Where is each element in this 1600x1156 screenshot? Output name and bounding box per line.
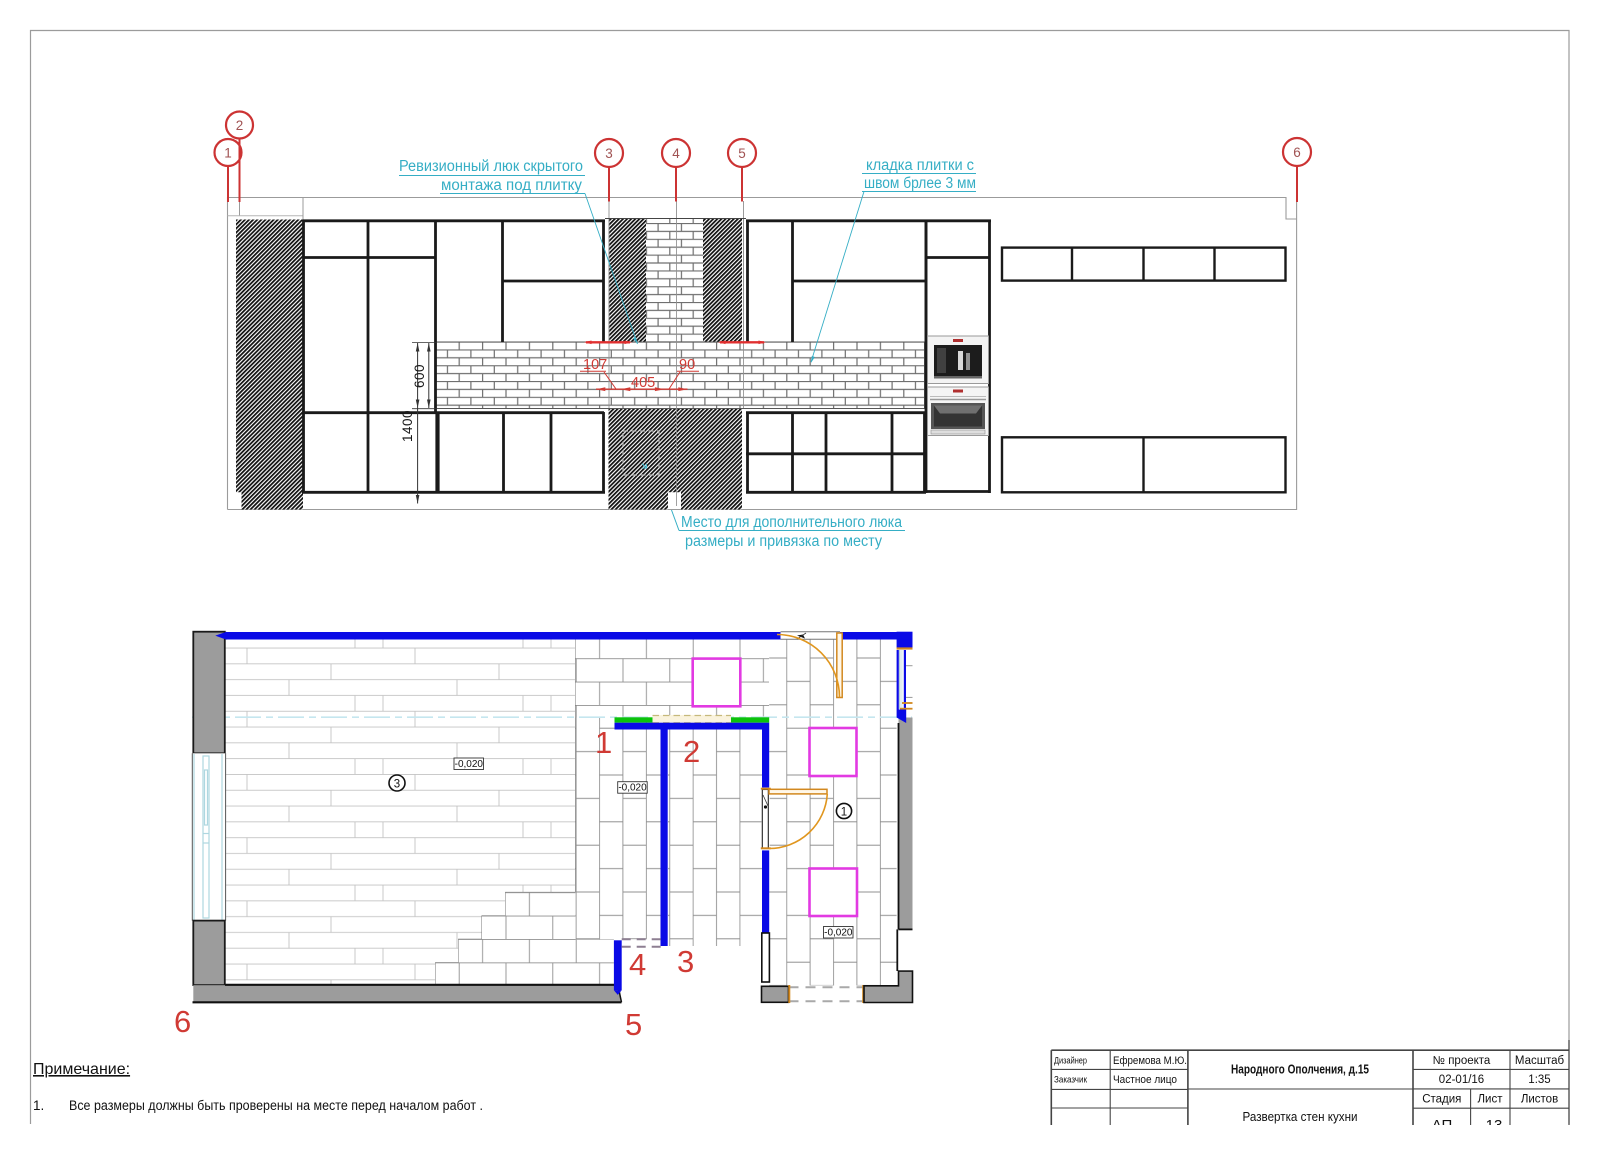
svg-text:размеры и привязка по месту: размеры и привязка по месту — [685, 533, 882, 550]
svg-text:107: 107 — [583, 357, 607, 373]
svg-text:-0,020: -0,020 — [618, 783, 647, 794]
svg-text:№ проекта: № проекта — [1433, 1055, 1491, 1067]
svg-text:Стадия: Стадия — [1422, 1094, 1461, 1106]
svg-text:5: 5 — [738, 146, 746, 161]
svg-text:02-01/16: 02-01/16 — [1439, 1074, 1484, 1086]
svg-text:кладка плитки с: кладка плитки с — [866, 157, 974, 174]
svg-text:Примечание:: Примечание: — [33, 1061, 130, 1078]
svg-text:3: 3 — [605, 146, 613, 161]
svg-text:600: 600 — [412, 364, 427, 388]
svg-text:1.: 1. — [33, 1098, 44, 1113]
svg-text:Листов: Листов — [1521, 1094, 1558, 1106]
svg-text:5: 5 — [625, 1007, 642, 1042]
svg-text:Частное лицо: Частное лицо — [1113, 1074, 1177, 1086]
svg-text:-0,020: -0,020 — [455, 759, 484, 770]
svg-text:6: 6 — [1293, 145, 1301, 160]
svg-text:90: 90 — [679, 357, 695, 373]
svg-text:1:35: 1:35 — [1528, 1074, 1550, 1086]
svg-text:Заказчик: Заказчик — [1054, 1075, 1087, 1085]
svg-text:2: 2 — [236, 118, 244, 133]
svg-text:6: 6 — [174, 1004, 191, 1039]
svg-text:Ревизионный люк скрытого: Ревизионный люк скрытого — [399, 158, 583, 175]
svg-text:1400: 1400 — [400, 410, 415, 442]
svg-text:Масштаб: Масштаб — [1515, 1055, 1565, 1067]
svg-text:1: 1 — [224, 146, 232, 161]
svg-text:3: 3 — [677, 944, 694, 979]
svg-text:Лист: Лист — [1478, 1094, 1504, 1106]
svg-text:4: 4 — [672, 146, 680, 161]
svg-text:Все размеры должны быть провер: Все размеры должны быть проверены на мес… — [69, 1098, 483, 1113]
svg-text:1: 1 — [595, 725, 612, 760]
svg-text:Ефремова М.Ю.: Ефремова М.Ю. — [1113, 1055, 1187, 1067]
svg-text:Место для дополнительного люка: Место для дополнительного люка — [681, 514, 902, 531]
svg-text:монтажа под плитку: монтажа под плитку — [441, 177, 582, 194]
svg-text:-0,020: -0,020 — [824, 928, 853, 939]
svg-text:Развертка стен кухни: Развертка стен кухни — [1243, 1110, 1358, 1124]
svg-text:3: 3 — [394, 778, 400, 790]
svg-text:2: 2 — [683, 734, 700, 769]
svg-text:1: 1 — [841, 806, 847, 818]
svg-text:405: 405 — [631, 375, 655, 391]
svg-text:швом брлее 3 мм: швом брлее 3 мм — [864, 175, 976, 192]
svg-text:Дизайнер: Дизайнер — [1054, 1056, 1087, 1066]
svg-text:4: 4 — [629, 947, 646, 982]
svg-text:Народного Ополчения, д.15: Народного Ополчения, д.15 — [1231, 1063, 1369, 1077]
